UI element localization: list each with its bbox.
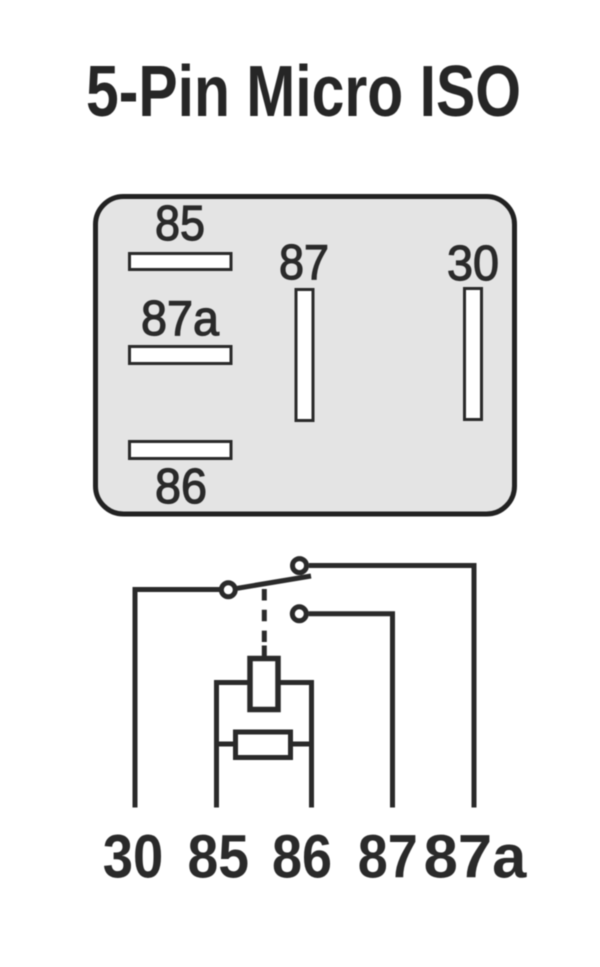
- svg-text:86: 86: [272, 823, 332, 892]
- svg-text:30: 30: [103, 823, 164, 892]
- svg-text:5-Pin Micro ISO: 5-Pin Micro ISO: [86, 52, 521, 132]
- svg-text:87: 87: [358, 823, 418, 892]
- svg-text:86: 86: [155, 460, 207, 514]
- svg-text:87a: 87a: [141, 292, 220, 346]
- svg-text:85: 85: [155, 197, 205, 251]
- svg-text:87: 87: [279, 236, 329, 290]
- svg-text:30: 30: [447, 237, 499, 291]
- svg-text:87a: 87a: [424, 823, 527, 892]
- svg-text:85: 85: [188, 823, 250, 892]
